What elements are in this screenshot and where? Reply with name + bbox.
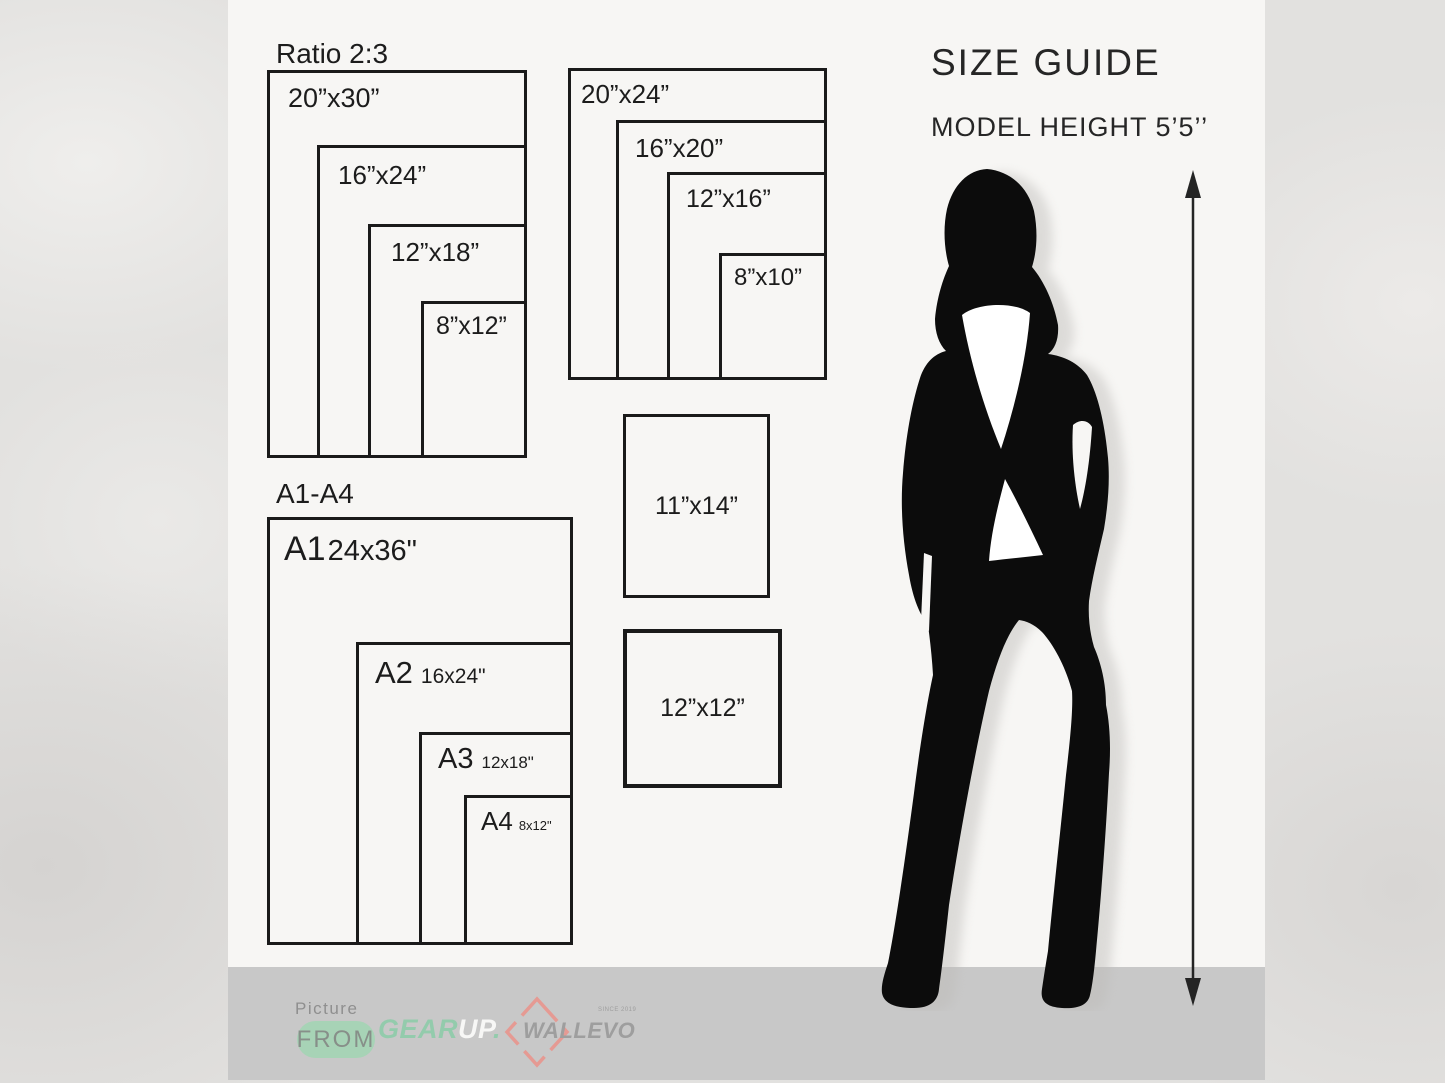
size-label: 8”x12” <box>436 312 524 341</box>
wallevo-since-label: SINCE 2019 <box>598 1007 636 1013</box>
model-silhouette <box>858 163 1142 1011</box>
ratio-group-title: Ratio 2:3 <box>276 38 388 70</box>
size-dim: 24x36" <box>328 535 417 568</box>
page-title: SIZE GUIDE <box>931 42 1161 84</box>
size-label-row: A3 12x18" <box>438 743 570 776</box>
size-dim: 8x12" <box>519 818 552 833</box>
size-label: 16”x20” <box>635 133 824 164</box>
gearup-logo-gear: GEAR <box>378 1014 458 1044</box>
from-badge: FROM <box>297 1021 375 1058</box>
size-name: A1 <box>284 530 326 569</box>
size-rect-12x12: 12”x12” <box>623 629 782 788</box>
size-label: 20”x30” <box>288 83 524 114</box>
size-label: 12”x18” <box>391 237 524 268</box>
size-dim: 16x24" <box>421 665 486 689</box>
from-label: FROM <box>297 1026 376 1054</box>
size-rect-a4: A4 8x12" <box>464 795 573 945</box>
size-label-row: A1 24x36" <box>284 530 570 569</box>
size-guide-image: Ratio 2:3 20”x30” 16”x24” 12”x18” 8”x12”… <box>0 0 1445 1083</box>
wallevo-logo: WALLEVO SINCE 2019 <box>503 994 643 1072</box>
size-label-row: A4 8x12" <box>481 806 570 837</box>
size-name: A2 <box>375 655 413 691</box>
size-rect-11x14: 11”x14” <box>623 414 770 598</box>
picture-label: Picture <box>295 999 358 1019</box>
size-label: 8”x10” <box>734 264 824 292</box>
height-arrow-icon <box>1180 167 1206 1009</box>
model-height-label: MODEL HEIGHT 5’5’’ <box>931 112 1208 143</box>
size-label: 16”x24” <box>338 160 524 191</box>
gearup-logo-up: UP <box>458 1014 493 1044</box>
size-name: A3 <box>438 743 473 776</box>
size-label: 12”x16” <box>686 185 824 214</box>
size-dim: 12x18" <box>481 753 533 773</box>
size-label-row: A2 16x24" <box>375 655 570 691</box>
wallevo-logo-text: WALLEVO <box>523 1018 635 1044</box>
size-label: 20”x24” <box>581 79 824 110</box>
size-rect-8x12: 8”x12” <box>421 301 527 458</box>
size-label: 11”x14” <box>655 492 738 521</box>
gearup-logo: GEARUP. <box>378 1014 501 1045</box>
gearup-logo-dot: . <box>493 1014 501 1044</box>
size-name: A4 <box>481 806 513 837</box>
size-label: 12”x12” <box>660 694 745 723</box>
a-series-group-title: A1-A4 <box>276 478 354 510</box>
size-rect-8x10: 8”x10” <box>719 253 827 380</box>
